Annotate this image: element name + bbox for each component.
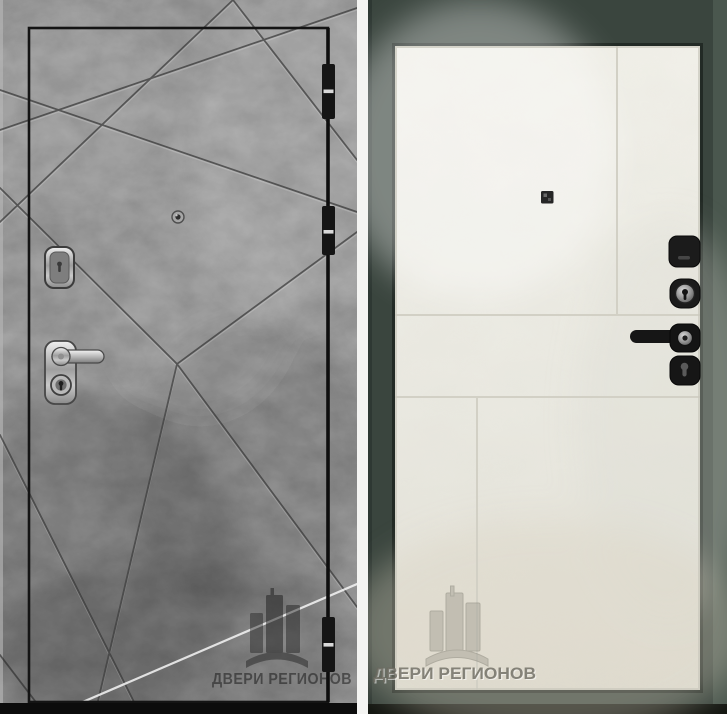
keyhole-escutcheon-icon <box>670 356 700 385</box>
watermark-text: ДВЕРИ РЕГИОНОВ <box>373 664 536 683</box>
square-peephole-icon <box>541 191 554 204</box>
watermark-text: ДВЕРИ РЕГИОНОВ <box>212 671 352 688</box>
door-interior-photo: ДВЕРИ РЕГИОНОВ ДВЕРИ РЕГИОНОВ <box>368 0 727 714</box>
door-product-photo: ДВЕРИ РЕГИОНОВ <box>0 0 727 714</box>
door-exterior-photo: ДВЕРИ РЕГИОНОВ <box>0 0 357 714</box>
hinge-bottom-icon <box>322 617 335 672</box>
hinge-middle-icon <box>322 206 335 255</box>
peephole-icon <box>172 211 184 223</box>
door-bottom-edge <box>0 703 357 714</box>
cylinder-lock-icon <box>51 375 71 395</box>
door-interior-graphic: ДВЕРИ РЕГИОНОВ ДВЕРИ РЕГИОНОВ <box>368 0 727 714</box>
key-escutcheon-icon <box>45 247 74 288</box>
cylinder-lock-icon <box>670 279 700 308</box>
photo-divider <box>357 0 368 714</box>
door-exterior-graphic: ДВЕРИ РЕГИОНОВ <box>0 0 357 714</box>
hinge-top-icon <box>322 64 335 119</box>
door-panel <box>368 0 727 714</box>
night-latch-icon <box>669 236 700 267</box>
